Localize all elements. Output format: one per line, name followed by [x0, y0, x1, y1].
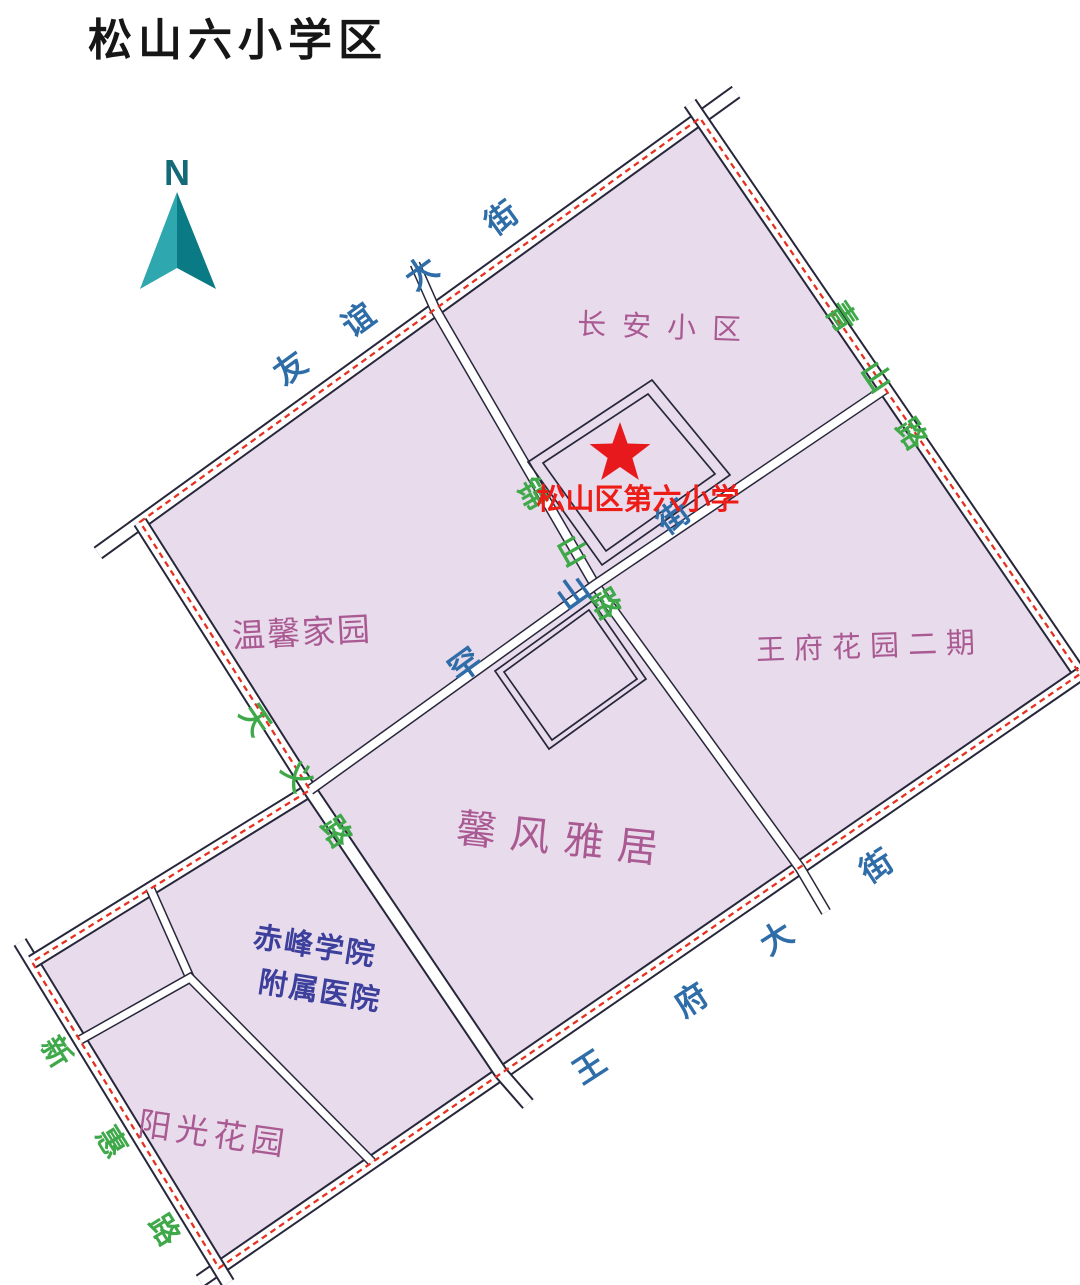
road-char: 大 [753, 914, 799, 962]
school-name-label: 松山区第六小学 [536, 482, 739, 516]
road-char: 街 [852, 842, 899, 890]
road-char: 大 [398, 249, 445, 297]
map-canvas: 松山六小学区 N 友 谊 大 街 青 山 路 王 府 大 街 新 [0, 0, 1080, 1285]
north-arrow-left-half [140, 192, 177, 289]
road-char: 府 [668, 976, 714, 1024]
school-district-map: 松山六小学区 N 友 谊 大 街 青 山 路 王 府 大 街 新 [0, 0, 1080, 1285]
road-char: 王 [566, 1043, 612, 1091]
road-char: 谊 [335, 296, 382, 344]
north-label: N [164, 152, 190, 193]
road-char: 街 [477, 194, 525, 243]
page-title: 松山六小学区 [88, 16, 388, 65]
north-arrow-right-half [177, 192, 216, 289]
district-label-wenxin: 温馨家园 [231, 610, 373, 654]
road-char: 友 [267, 344, 314, 392]
district-label-changan: 长安小区 [577, 308, 758, 347]
north-arrow: N [140, 152, 216, 289]
district-blocks [32, 118, 1080, 1268]
